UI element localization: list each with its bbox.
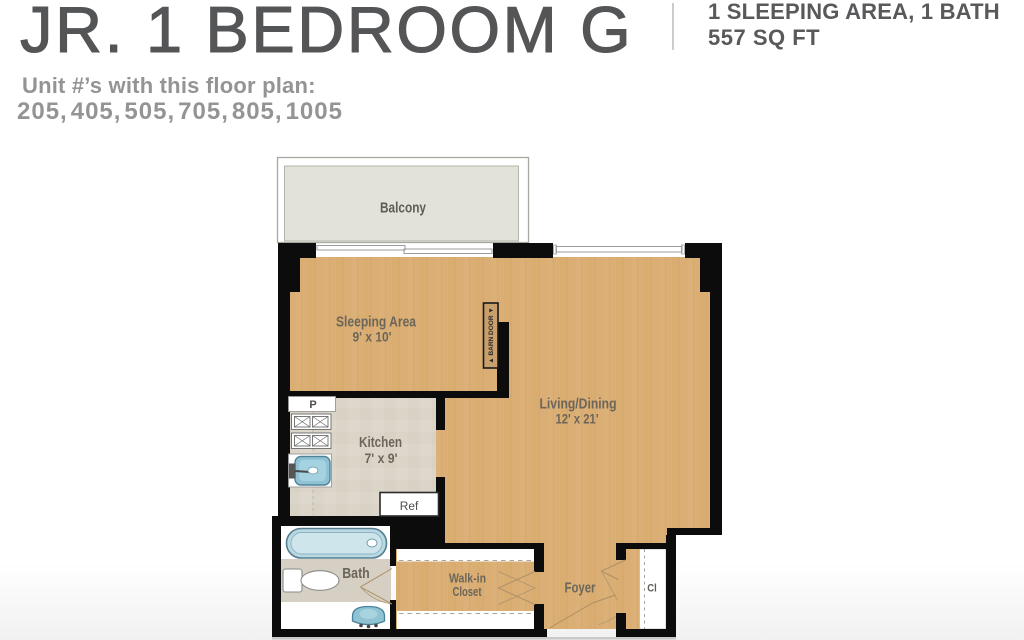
svg-text:9' x 10': 9' x 10'	[353, 329, 392, 345]
svg-text:Balcony: Balcony	[380, 201, 426, 217]
svg-text:P: P	[309, 399, 316, 411]
svg-text:Cl: Cl	[647, 583, 657, 595]
svg-text:7' x 9': 7' x 9'	[365, 450, 398, 466]
svg-text:▲ BARN DOOR ▼: ▲ BARN DOOR ▼	[488, 307, 495, 364]
svg-text:12' x 21': 12' x 21'	[556, 411, 599, 427]
svg-text:Bath: Bath	[342, 566, 370, 582]
svg-text:Walk-in: Walk-in	[449, 572, 486, 586]
svg-text:Ref: Ref	[400, 501, 419, 513]
svg-text:Closet: Closet	[453, 585, 483, 599]
svg-text:Foyer: Foyer	[565, 581, 596, 597]
svg-text:Kitchen: Kitchen	[359, 435, 402, 451]
